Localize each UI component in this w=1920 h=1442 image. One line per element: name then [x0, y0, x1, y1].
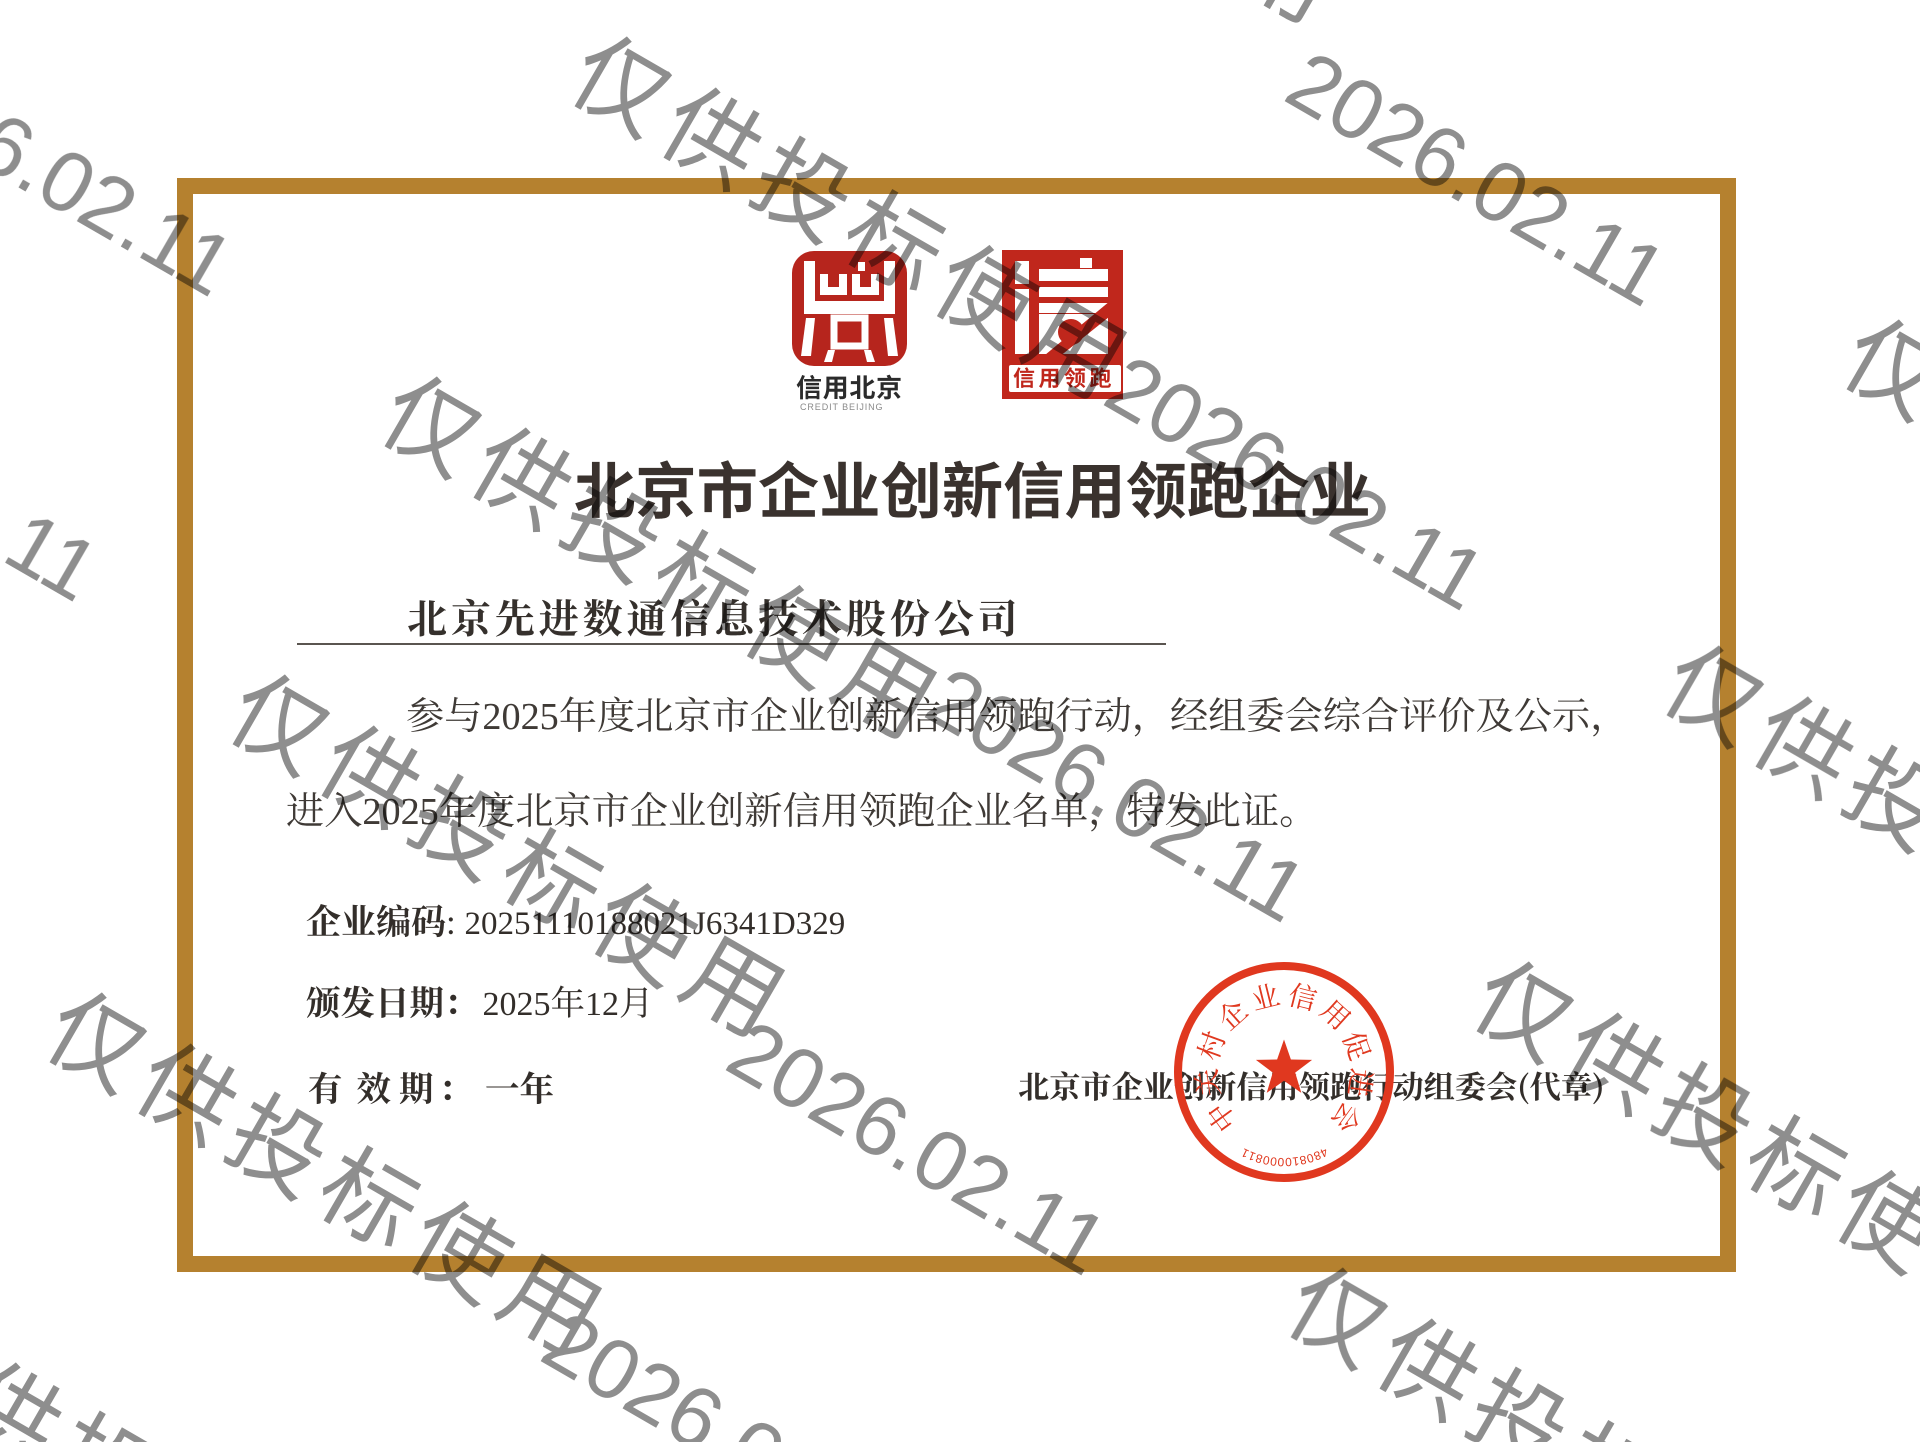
- svg-text::: :: [446, 903, 456, 942]
- svg-text:0: 0: [1284, 1155, 1292, 1169]
- svg-text:2025: 2025: [482, 696, 558, 738]
- svg-text:12: 12: [585, 986, 619, 1023]
- svg-text:2025: 2025: [483, 986, 551, 1023]
- svg-text:CREDIT BEIJING: CREDIT BEIJING: [800, 402, 883, 412]
